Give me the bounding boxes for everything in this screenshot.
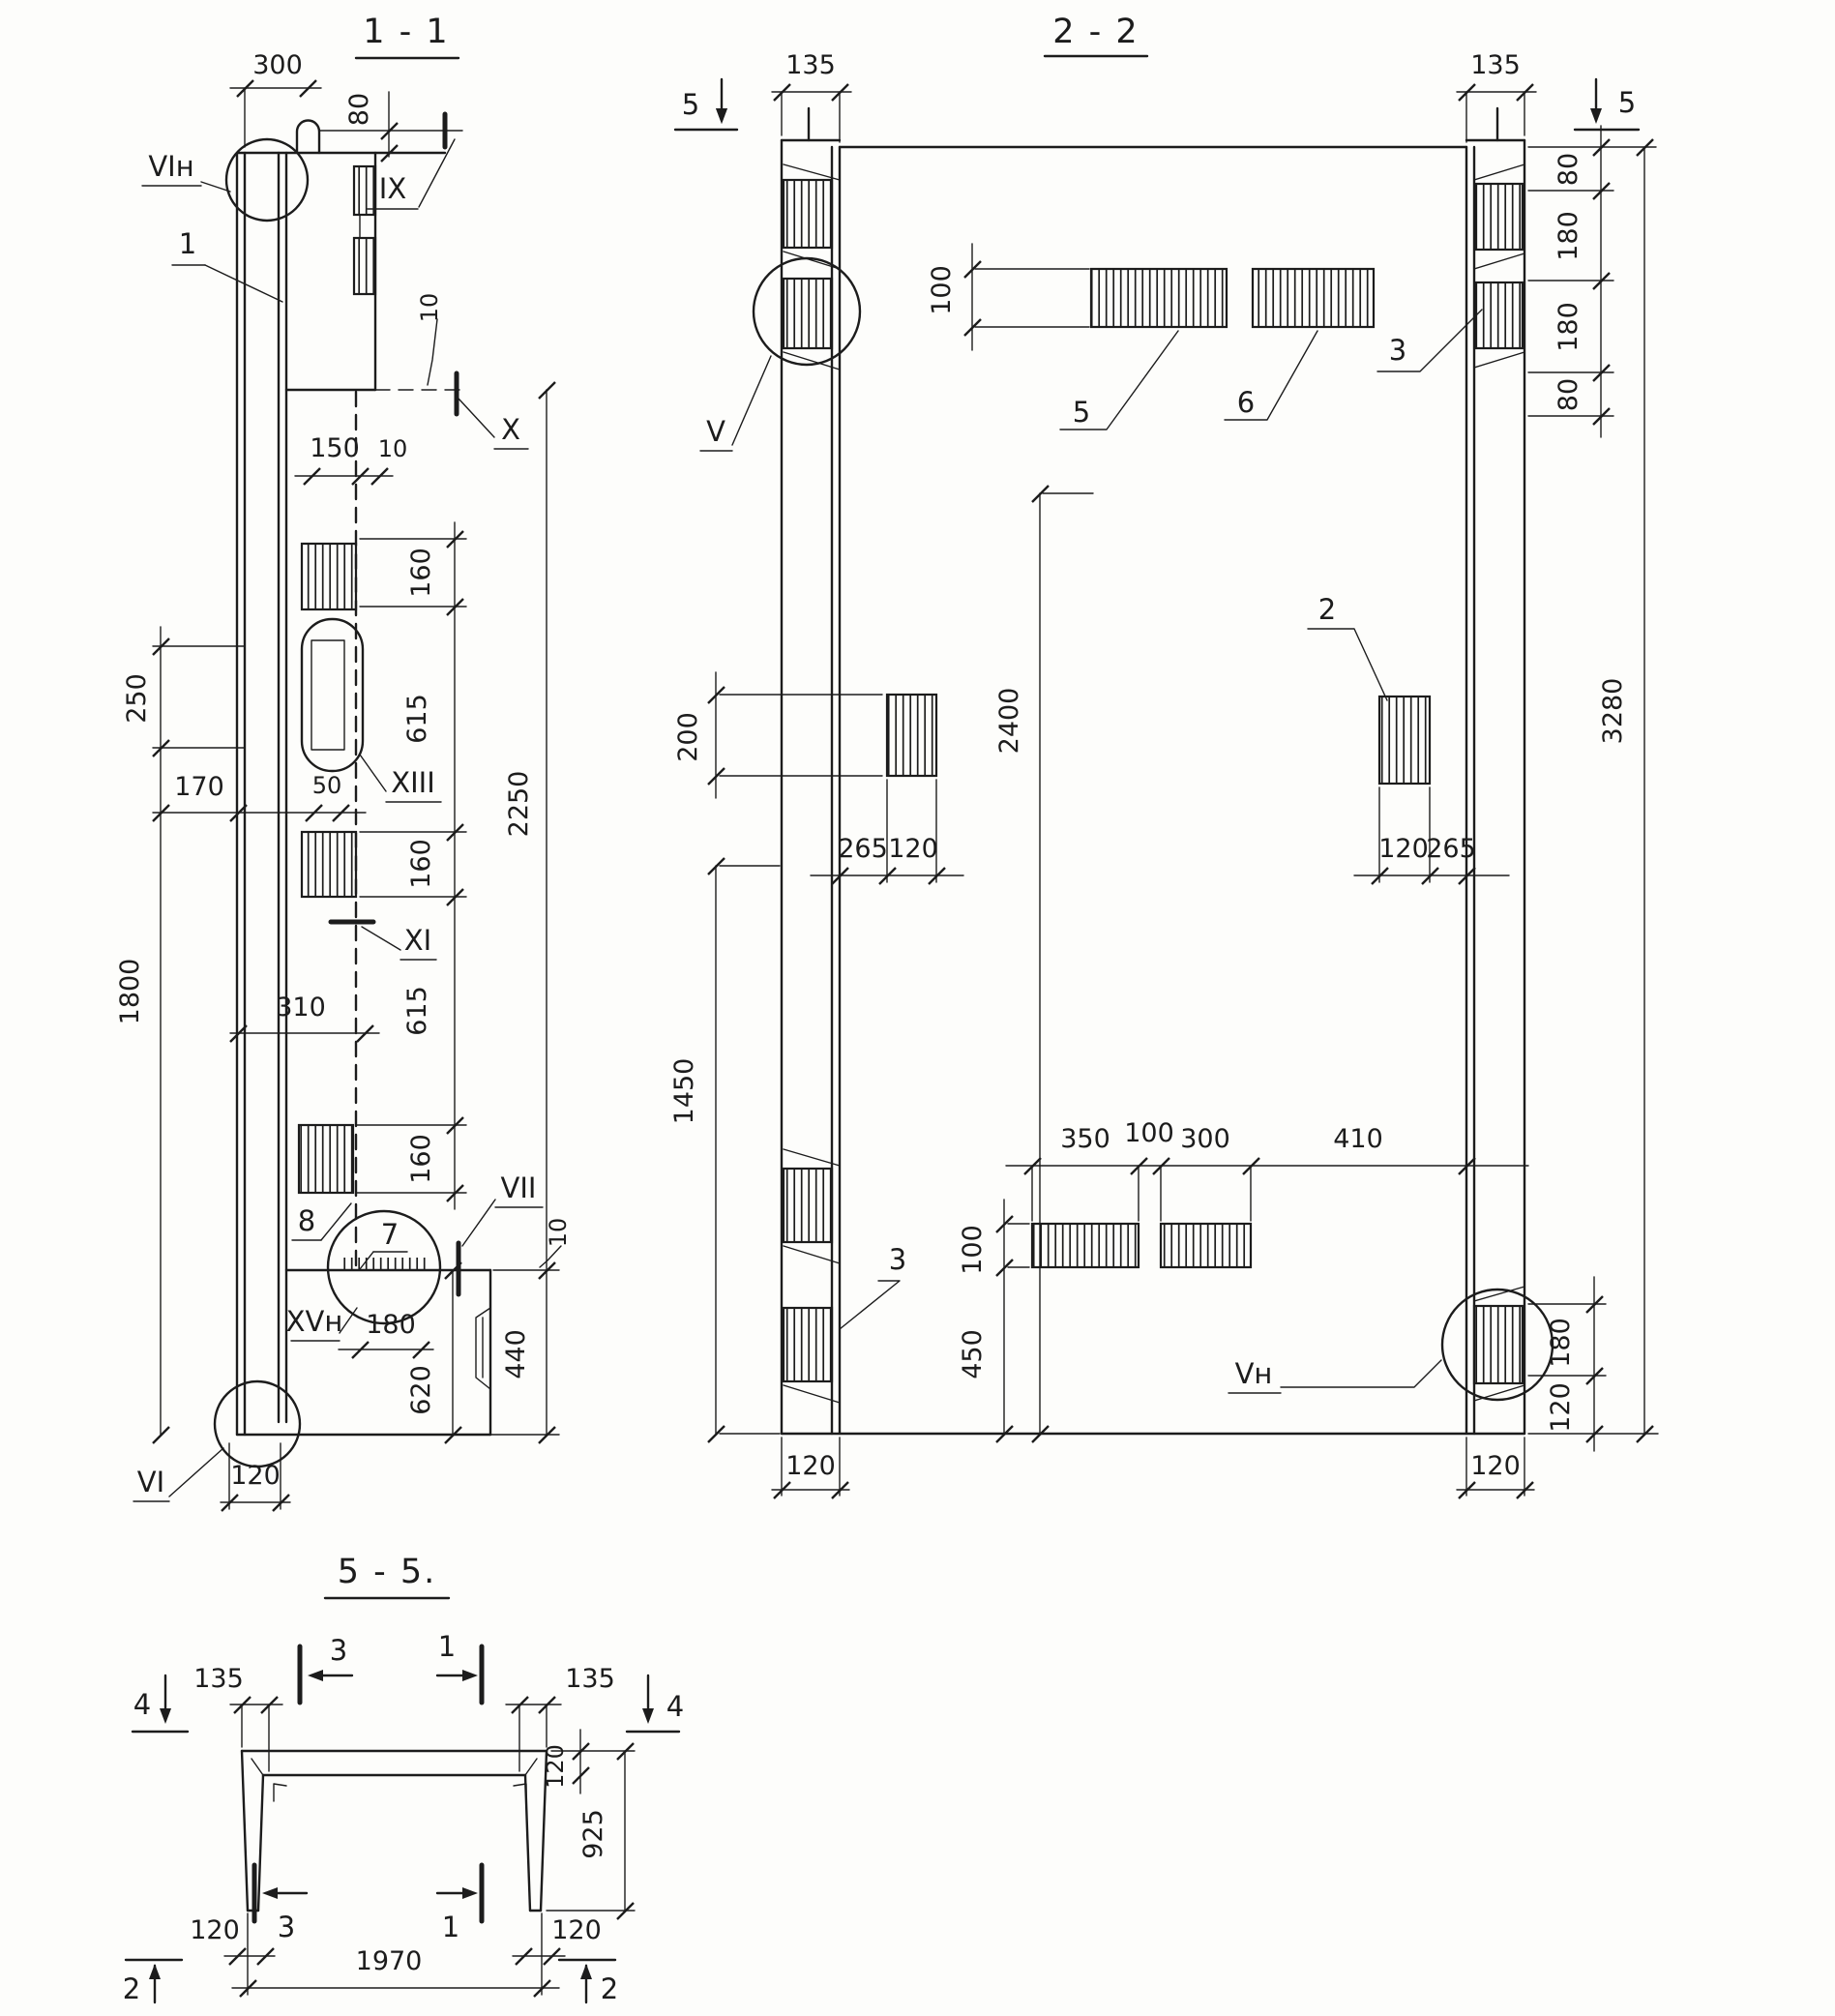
dim-100-mid: 100 — [1124, 1118, 1174, 1148]
embed-plate-5 — [1091, 269, 1227, 327]
dim-410: 410 — [1333, 1124, 1383, 1154]
column-elevation-outline — [237, 121, 490, 1436]
dim-615-b: 615 — [402, 986, 432, 1036]
cut-5-right-label: 5 — [1618, 86, 1636, 119]
dim-310: 310 — [276, 993, 326, 1023]
dim-120-bot-left: 120 — [190, 1915, 240, 1945]
callout-3-bot: 3 — [889, 1243, 906, 1276]
callout-xi: XI — [404, 924, 431, 957]
cut-marker-5-left: 5 — [675, 79, 737, 130]
callout-vin: VIн — [148, 150, 193, 183]
callout-xiii: XIII — [391, 766, 435, 799]
callout-v: V — [706, 415, 725, 448]
dim-2400: 2400 — [994, 688, 1024, 755]
channel-outline — [242, 1751, 547, 1911]
callout-ix: IX — [379, 172, 406, 205]
section-1-1-view: 1 - 1 — [115, 13, 572, 1511]
dim-10-top: 10 — [416, 293, 443, 323]
dim-120-bot-left: 120 — [785, 1451, 836, 1481]
dim-100-top: 100 — [927, 265, 957, 315]
callout-vn: Vн — [1235, 1357, 1273, 1390]
drawing-sheet: 1 - 1 — [0, 0, 1835, 2016]
dim-620: 620 — [406, 1365, 436, 1415]
cut-1-bot: 1 — [442, 1911, 459, 1943]
dim-1970: 1970 — [356, 1946, 423, 1976]
dim-200: 200 — [673, 712, 703, 762]
dim-300: 300 — [252, 50, 303, 80]
dim-925: 925 — [578, 1809, 608, 1859]
dim-615-a: 615 — [402, 694, 432, 744]
dim-250: 250 — [122, 673, 152, 724]
dim-180-a: 180 — [1554, 211, 1583, 261]
callout-3-top: 3 — [1389, 334, 1406, 367]
callout-2: 2 — [1318, 593, 1336, 626]
dim-10-mid: 10 — [378, 435, 408, 462]
callout-xvn: XVн — [286, 1305, 343, 1338]
embed-plate-lower — [299, 1125, 353, 1193]
dim-1450: 1450 — [669, 1058, 699, 1125]
section-2-2-view: 2 - 2 — [669, 13, 1658, 1498]
dim-135-right: 135 — [1470, 50, 1521, 80]
embed-plate-middle — [302, 832, 356, 897]
section-1-1-callouts: VIн 1 IX X XIII XI 8 7 VII — [133, 139, 543, 1501]
dim-265-left: 265 — [838, 834, 888, 864]
dim-120: 120 — [230, 1461, 281, 1491]
callout-1: 1 — [179, 227, 196, 260]
callout-5: 5 — [1073, 396, 1090, 429]
dim-160-b: 160 — [406, 839, 436, 889]
head-embed-tabs — [354, 166, 375, 294]
detail-circle-vi — [215, 1381, 300, 1467]
dim-135-right: 135 — [565, 1664, 615, 1694]
lifting-loop — [297, 121, 319, 154]
dim-80: 80 — [344, 93, 374, 126]
cut-3-top: 3 — [330, 1634, 347, 1667]
dim-300: 300 — [1180, 1124, 1230, 1154]
corner-mark-right — [514, 1784, 526, 1801]
section-2-2-title: 2 - 2 — [1052, 13, 1139, 51]
embed-plate-2 — [1379, 697, 1430, 784]
cut-1-top: 1 — [438, 1630, 456, 1663]
dim-120-r: 120 — [1546, 1382, 1576, 1433]
dim-135-left: 135 — [193, 1664, 244, 1694]
dim-180-r: 180 — [1546, 1318, 1576, 1368]
callout-8: 8 — [298, 1204, 315, 1237]
section-2-2-dimensions: 135 135 80 180 180 80 3280 — [669, 50, 1658, 1498]
dim-2250: 2250 — [504, 771, 534, 838]
cut-5-left-label: 5 — [682, 88, 699, 121]
dim-160-a: 160 — [406, 548, 436, 598]
dim-440: 440 — [501, 1329, 531, 1379]
dim-80-b: 80 — [1554, 378, 1583, 411]
detail-circle-vin — [226, 139, 308, 221]
dim-1800: 1800 — [115, 959, 145, 1025]
embed-plate-left-mid — [887, 695, 936, 776]
cut-marker-5-right: 5 — [1575, 79, 1639, 130]
embed-plate-bottom-b — [1161, 1224, 1251, 1267]
engineering-drawing: 1 - 1 — [0, 0, 1835, 2016]
dim-160-c: 160 — [406, 1134, 436, 1184]
cut-4-left: 4 — [133, 1688, 151, 1721]
dim-350: 350 — [1060, 1124, 1110, 1154]
section-5-5-title: 5 - 5. — [338, 1553, 437, 1591]
dim-450: 450 — [958, 1329, 988, 1379]
handhole-slot — [302, 619, 363, 771]
cut-3-bot: 3 — [278, 1911, 295, 1943]
embed-plate-6 — [1253, 269, 1374, 327]
callout-vi: VI — [137, 1466, 164, 1498]
cut-2-left: 2 — [123, 1972, 140, 2005]
section-1-1-dimensions: 300 80 10 150 10 250 1800 170 50 — [115, 50, 572, 1511]
callout-6: 6 — [1237, 386, 1255, 419]
cut-2-right: 2 — [601, 1972, 618, 2005]
section-5-5-dimensions: 135 135 120 925 120 120 1970 — [190, 1664, 635, 1997]
dim-10-low: 10 — [545, 1218, 572, 1248]
embed-plate-upper — [302, 544, 356, 609]
section-5-5-view: 5 - 5. 135 135 120 — [123, 1553, 684, 2005]
dim-80-a: 80 — [1554, 153, 1583, 186]
callout-7: 7 — [381, 1218, 399, 1251]
callout-vii: VII — [501, 1171, 537, 1204]
dim-180: 180 — [366, 1310, 416, 1340]
corner-mark-left — [274, 1784, 286, 1801]
section-1-1-title: 1 - 1 — [363, 13, 449, 51]
dim-3280: 3280 — [1598, 678, 1628, 745]
dim-120-right: 120 — [1378, 834, 1429, 864]
dim-135-left: 135 — [785, 50, 836, 80]
dim-150: 150 — [310, 433, 360, 463]
cut-4-right: 4 — [666, 1690, 684, 1723]
callout-x: X — [501, 413, 520, 446]
dim-50: 50 — [312, 772, 342, 799]
dim-170: 170 — [174, 772, 224, 802]
embed-plate-bottom-a — [1032, 1224, 1139, 1267]
dim-100-bot: 100 — [958, 1225, 988, 1275]
dim-120-bot-right: 120 — [551, 1915, 602, 1945]
dim-180-b: 180 — [1554, 302, 1583, 352]
dim-265-right: 265 — [1426, 834, 1476, 864]
right-flange-embeds — [1474, 164, 1524, 1401]
dim-120-bot-right: 120 — [1470, 1451, 1521, 1481]
dim-120-left: 120 — [888, 834, 938, 864]
